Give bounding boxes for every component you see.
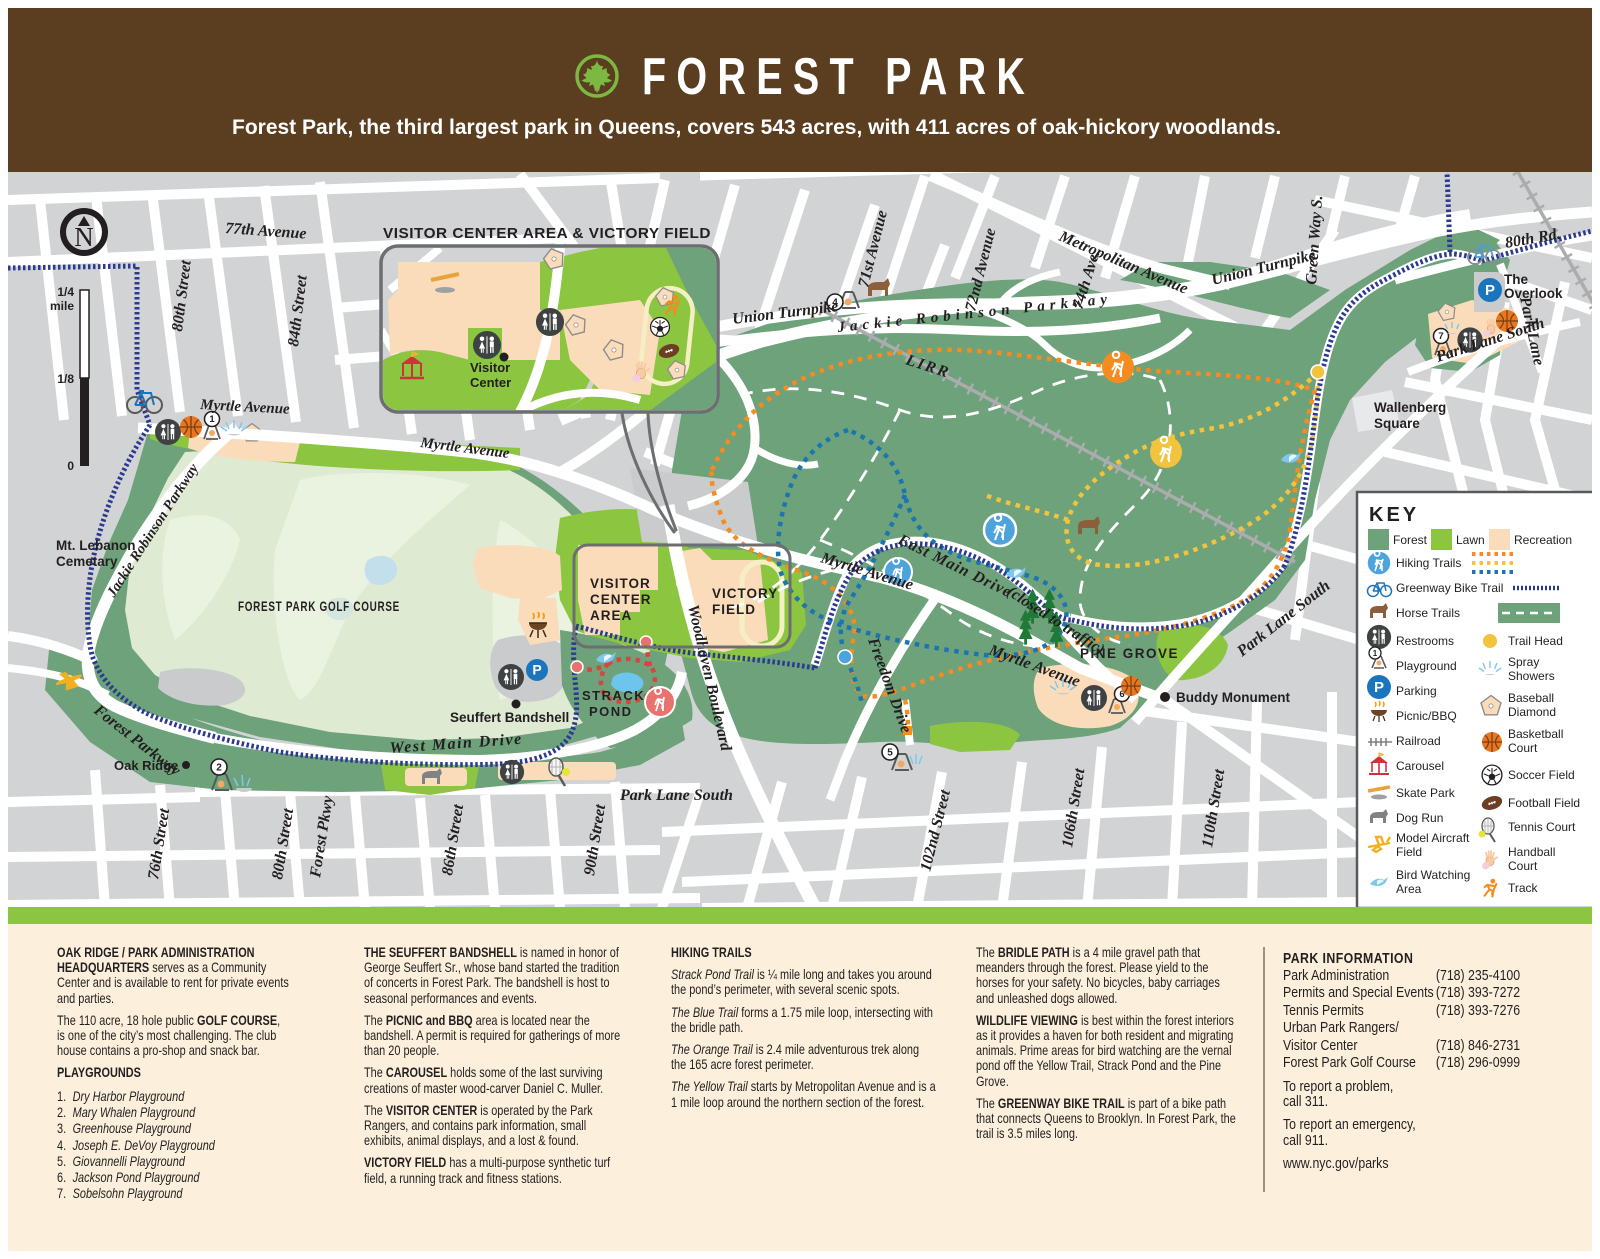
svg-text:5: 5 [887, 748, 893, 759]
svg-text:Bird Watching: Bird Watching [1396, 868, 1470, 882]
svg-text:Field: Field [1396, 845, 1422, 859]
svg-text:Basketball: Basketball [1508, 727, 1563, 741]
svg-text:Visitor: Visitor [470, 360, 510, 375]
svg-text:Model Aircraft: Model Aircraft [1396, 831, 1470, 845]
svg-text:mile: mile [50, 299, 74, 313]
svg-text:0: 0 [67, 459, 74, 473]
svg-text:P: P [1374, 679, 1384, 696]
svg-text:Wallenberg: Wallenberg [1374, 400, 1446, 415]
svg-text:Buddy Monument: Buddy Monument [1176, 690, 1290, 705]
svg-text:VICTORY: VICTORY [712, 586, 778, 601]
svg-text:Playground: Playground [1396, 659, 1457, 673]
svg-text:FOREST PARK GOLF COURSE: FOREST PARK GOLF COURSE [238, 598, 400, 614]
svg-text:Railroad: Railroad [1396, 734, 1441, 748]
svg-text:Spray: Spray [1508, 655, 1539, 669]
svg-text:Showers: Showers [1508, 669, 1555, 683]
svg-text:Handball: Handball [1508, 845, 1555, 859]
svg-text:Horse Trails: Horse Trails [1396, 606, 1460, 620]
svg-text:Parking: Parking [1396, 684, 1437, 698]
svg-text:Trail Head: Trail Head [1508, 634, 1563, 648]
svg-text:Recreation: Recreation [1514, 533, 1572, 547]
svg-text:Square: Square [1374, 416, 1420, 431]
svg-text:STRACK: STRACK [582, 688, 645, 703]
svg-text:Restrooms: Restrooms [1396, 634, 1454, 648]
svg-text:KEY: KEY [1369, 504, 1419, 526]
svg-text:Hiking Trails: Hiking Trails [1396, 556, 1461, 570]
svg-text:VISITOR CENTER AREA & VICTORY: VISITOR CENTER AREA & VICTORY FIELD [383, 225, 711, 242]
svg-text:Seuffert Bandshell: Seuffert Bandshell [450, 710, 569, 725]
svg-text:Forest: Forest [1393, 533, 1428, 547]
svg-text:The: The [1504, 272, 1528, 287]
svg-text:Lawn: Lawn [1456, 533, 1485, 547]
svg-text:VISITOR: VISITOR [590, 576, 651, 591]
svg-text:POND: POND [589, 704, 633, 719]
svg-text:Area: Area [1396, 882, 1422, 896]
svg-text:Dog Run: Dog Run [1396, 811, 1443, 825]
svg-text:Cemetary: Cemetary [56, 554, 118, 569]
svg-text:Court: Court [1508, 859, 1538, 873]
svg-text:PINE GROVE: PINE GROVE [1080, 646, 1179, 661]
svg-text:Picnic/BBQ: Picnic/BBQ [1396, 709, 1457, 723]
svg-text:Carousel: Carousel [1396, 759, 1444, 773]
svg-text:1/8: 1/8 [57, 372, 74, 386]
svg-text:AREA: AREA [590, 608, 632, 623]
svg-text:N: N [74, 222, 94, 252]
svg-text:Football Field: Football Field [1508, 796, 1580, 810]
svg-text:Center: Center [470, 375, 511, 390]
svg-text:Soccer Field: Soccer Field [1508, 768, 1575, 782]
svg-text:1/4: 1/4 [57, 285, 74, 299]
svg-text:Tennis Court: Tennis Court [1508, 820, 1576, 834]
svg-text:1: 1 [1373, 649, 1378, 658]
svg-text:Mt. Lebanon: Mt. Lebanon [56, 538, 136, 553]
svg-text:Overlook: Overlook [1504, 286, 1563, 301]
svg-text:1: 1 [209, 414, 215, 425]
svg-text:P: P [1485, 282, 1495, 299]
svg-text:Diamond: Diamond [1508, 705, 1556, 719]
svg-text:Track: Track [1508, 881, 1539, 895]
svg-text:Park Lane South: Park Lane South [619, 787, 733, 804]
svg-text:Greenway Bike Trail: Greenway Bike Trail [1396, 581, 1503, 595]
svg-text:CENTER: CENTER [590, 592, 652, 607]
svg-text:Oak Ridge: Oak Ridge [114, 758, 178, 773]
svg-text:FIELD: FIELD [712, 602, 756, 617]
svg-text:P: P [532, 662, 541, 678]
svg-text:7: 7 [1438, 331, 1443, 342]
svg-text:Baseball: Baseball [1508, 691, 1554, 705]
svg-text:Skate Park: Skate Park [1396, 786, 1456, 800]
svg-text:2: 2 [216, 763, 222, 774]
svg-text:Court: Court [1508, 741, 1538, 755]
